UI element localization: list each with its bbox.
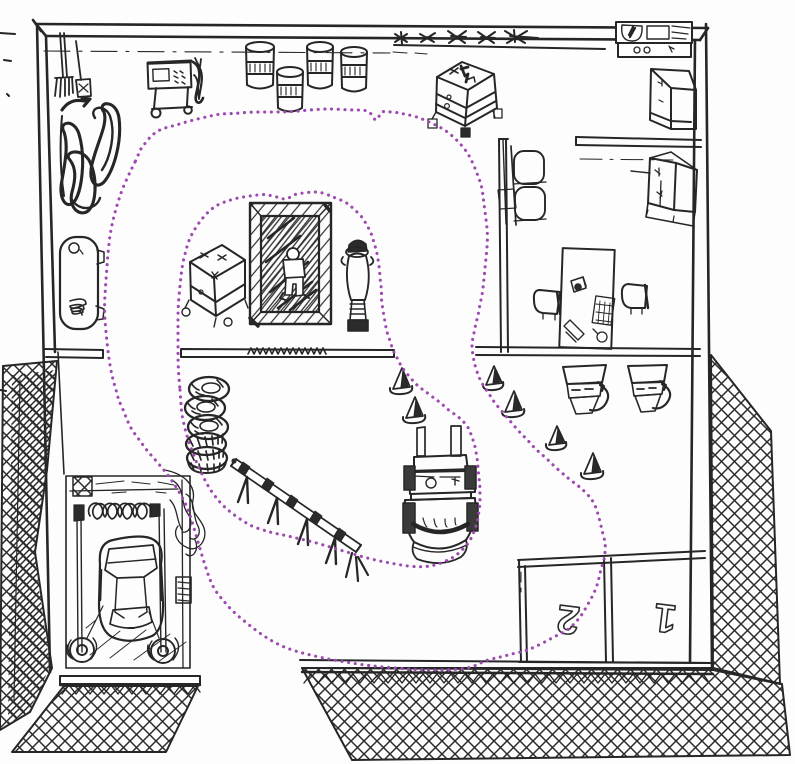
svg-text:1: 1 [651,595,678,641]
